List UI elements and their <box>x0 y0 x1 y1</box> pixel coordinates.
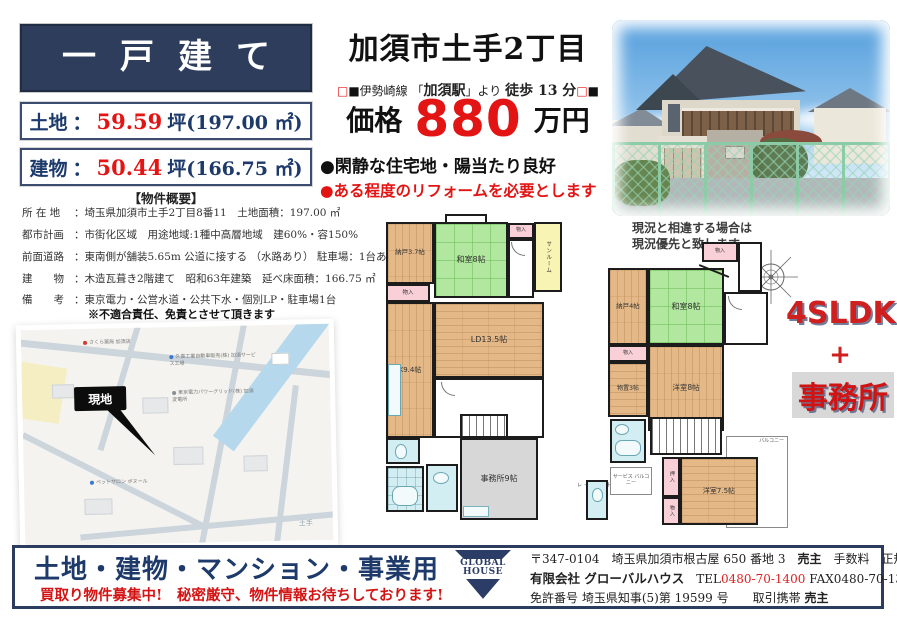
land-size-box: 土地：59.59坪(197.00 ㎡) <box>20 102 312 140</box>
renovation-warning-line: ●ある程度のリフォームを必要とします <box>320 179 597 201</box>
map-road <box>271 385 299 551</box>
floorplan-note-line1: 現況と相違する場合は <box>632 221 772 237</box>
flyer-page: 一戸建て 土地：59.59坪(197.00 ㎡) 建物：50.44坪(166.7… <box>0 0 897 634</box>
footer-fee: 手数料 正規報酬 <box>834 552 897 566</box>
map-pin-icon <box>172 391 176 395</box>
overview-row-value: ：木造瓦葺き2階建て 昭和63年建築 延べ床面積：166.75 ㎡ <box>74 271 376 286</box>
company-logo: GLOBAL HOUSE <box>452 550 514 599</box>
floorplan-1f: 納戸3.7帖 物入 和室8帖 物入 サンルーム K9.4帖 LD13.5帖 事務… <box>383 214 569 529</box>
building-number: 50.44 <box>96 155 162 180</box>
price-unit: 万円 <box>534 99 590 139</box>
map-building <box>84 498 112 515</box>
room-sunroom: サンルーム <box>534 222 562 292</box>
land-rest: 坪(197.00 ㎡) <box>167 108 302 135</box>
land-label: 土地 <box>29 108 67 135</box>
room-nando-1f: 納戸3.7帖 <box>386 222 434 284</box>
price-value: 880 <box>414 94 521 144</box>
toilet-icon <box>592 488 603 502</box>
overview-row-value: ：東南側が舗装5.65m 公道に接する （水路あり） 駐車場：1台あり <box>74 249 397 264</box>
kitchen-counter-icon <box>388 364 401 416</box>
room-hall-closet-2f <box>738 242 762 292</box>
photo-fence <box>612 142 890 216</box>
footer-address-line: 〒347-0104 埼玉県加須市根古屋 650 番地 3 売主 手数料 正規報酬 <box>530 550 878 569</box>
map-label-pet: ペットサロン ボヌール <box>90 478 148 486</box>
room-living-dining: LD13.5帖 <box>434 302 544 378</box>
footer-address: 〒347-0104 埼玉県加須市根古屋 650 番地 3 <box>530 552 785 566</box>
map-building <box>271 353 289 365</box>
overview-row: 都市計画：市街化区域 用途地域:1種中高層地域 建60%・容150% <box>22 227 367 242</box>
room-washitsu-1f: 和室8帖 <box>434 222 508 298</box>
room-closet: 物入 <box>608 345 648 362</box>
building-sep: ： <box>72 154 91 181</box>
map-label-factory: 久喜工業自動車販売(株) 加須サービス工場 <box>169 351 259 367</box>
map-pin-icon <box>169 355 173 359</box>
overview-row-value: ：埼玉県加須市土手2丁目8番11 土地面積：197.00 ㎡ <box>74 205 340 220</box>
footer-license-line: 免許番号 埼玉県知事(5)第 19599 号 取引携帯 売主 <box>530 589 878 608</box>
room-closet: 物入 <box>508 223 534 239</box>
location-map: さくら薬局 加須店 久喜工業自動車販売(株) 加須サービス工場 東京電力パワーグ… <box>16 319 339 552</box>
footer-deal-label: 取引携帯 <box>753 591 801 605</box>
overview-row-label: 都市計画 <box>22 227 74 242</box>
room-closet: 物入 <box>702 242 738 262</box>
map-building <box>173 446 203 465</box>
footer-promo-sub: 買取り物件募集中! 秘密厳守、物件情報お待ちしております! <box>40 584 443 605</box>
layout-badge-office: 事務所 <box>792 372 894 418</box>
room-closet: 物入 <box>386 284 430 302</box>
overview-row-value: ：東京電力・公営水道・公共下水・個別LP・駐車場1台 <box>74 292 336 307</box>
overview-row-label: 建 物 <box>22 271 74 286</box>
property-type-banner: 一戸建て <box>20 24 312 92</box>
room-closet: 物入 <box>662 497 680 525</box>
stairs-2f <box>650 417 722 455</box>
feature-line: ●閑静な住宅地・陽当たり良好 <box>320 152 556 177</box>
office-sink-icon <box>463 506 489 517</box>
washbasin-icon <box>615 424 629 435</box>
bathtub-icon <box>615 440 641 456</box>
price-row: 価格 880 万円 <box>318 94 618 144</box>
map-pin-icon <box>90 480 94 484</box>
map-building <box>52 384 74 398</box>
room-nando-2f: 納戸4帖 <box>608 268 648 345</box>
overview-row-value: ：市街化区域 用途地域:1種中高層地域 建60%・容150% <box>74 227 358 242</box>
building-rest: 坪(166.75 ㎡) <box>167 154 302 181</box>
overview-row: 建 物：木造瓦葺き2階建て 昭和63年建築 延べ床面積：166.75 ㎡ <box>22 271 367 286</box>
footer-tel-label: TEL <box>696 572 721 586</box>
price-label: 価格 <box>346 99 402 139</box>
map-label-power: 東京電力パワーグリッド(株) 加須変電所 <box>172 387 257 403</box>
logo-text-house: HOUSE <box>452 568 514 577</box>
overview-row-label: 前面道路 <box>22 249 74 264</box>
footer-company-name: 有限会社 グローバルハウス <box>530 571 684 586</box>
overview-row-label: 所 在 地 <box>22 205 74 220</box>
land-number: 59.59 <box>96 109 162 134</box>
overview-row: 所 在 地：埼玉県加須市土手2丁目8番11 土地面積：197.00 ㎡ <box>22 205 367 220</box>
bathtub-icon <box>392 486 418 506</box>
washbasin-icon <box>433 472 449 484</box>
building-size-box: 建物：50.44坪(166.75 ㎡) <box>20 148 312 186</box>
stairs-1f <box>460 414 508 438</box>
map-building <box>142 397 168 414</box>
footer-promo-title: 土地・建物・マンション・事業用 <box>34 549 439 586</box>
overview-row: 備 考：東京電力・公営水道・公共下水・個別LP・駐車場1台 <box>22 292 367 307</box>
house-window <box>668 104 680 132</box>
room-oshiire: 押入 <box>662 457 680 497</box>
site-location-callout: 現地 <box>74 386 126 411</box>
logo-bar-shape <box>455 550 511 559</box>
overview-row: 前面道路：東南側が舗装5.65m 公道に接する （水路あり） 駐車場：1台あり <box>22 249 367 264</box>
map-pin-icon <box>83 340 87 344</box>
layout-badge-plus: + <box>786 340 894 370</box>
footer-seller: 売主 <box>798 552 822 566</box>
map-building <box>243 455 267 471</box>
room-western75: 洋室7.5帖 <box>680 457 758 525</box>
layout-badge: 4SLDK <box>786 296 894 331</box>
building-label: 建物 <box>29 154 67 181</box>
room-storeroom: 物置3帖 <box>608 362 648 417</box>
map-label-district: 土手 <box>299 518 313 528</box>
footer-fax: FAX0480-70-1399 <box>809 572 897 586</box>
room-washitsu-2f: 和室8帖 <box>648 268 724 345</box>
footer-license: 免許番号 埼玉県知事(5)第 19599 号 <box>530 591 729 605</box>
floorplan-2f: 物入 納戸4帖 和室8帖 物入 物置3帖 洋室8帖 サービス バルコニー バルコ… <box>606 240 792 532</box>
logo-triangle-shape <box>466 579 500 599</box>
footer-contact-line: 有限会社 グローバルハウス TEL0480-70-1400 FAX0480-70… <box>530 569 878 589</box>
exterior-photo <box>612 20 890 216</box>
property-address-headline: 加須市土手2丁目 <box>318 24 618 68</box>
toilet-icon <box>395 444 407 459</box>
room-service-balcony: サービス バルコニー <box>610 467 652 495</box>
footer-deal-value: 売主 <box>804 591 828 605</box>
footer-tel-number: 0480-70-1400 <box>721 572 805 586</box>
map-label-pharmacy: さくら薬局 加須店 <box>83 338 131 346</box>
footer-company-info: 〒347-0104 埼玉県加須市根古屋 650 番地 3 売主 手数料 正規報酬… <box>530 550 878 608</box>
land-sep: ： <box>72 108 91 135</box>
overview-row-label: 備 考 <box>22 292 74 307</box>
